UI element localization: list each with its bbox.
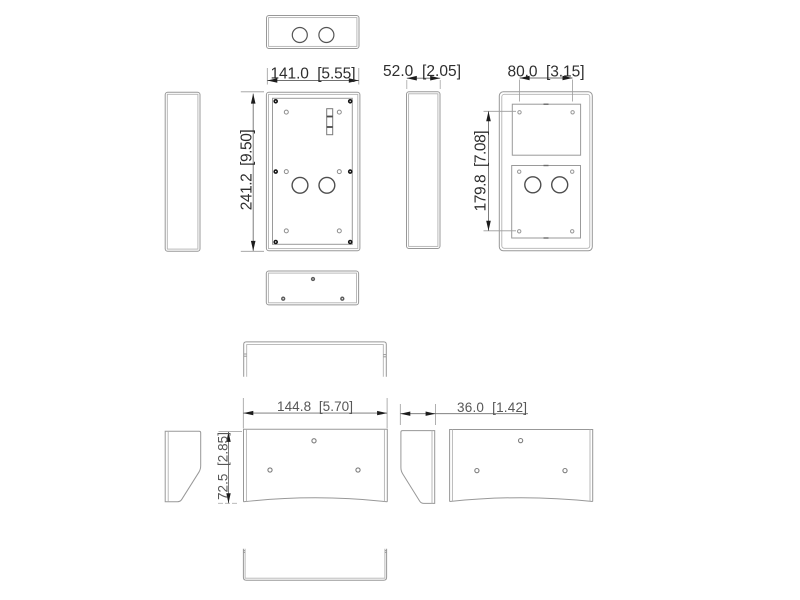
svg-text:52.0 [2.05]: 52.0 [2.05] bbox=[383, 63, 461, 80]
svg-text:179.8 [7.08]: 179.8 [7.08] bbox=[473, 130, 490, 211]
svg-text:241.2 [9.50]: 241.2 [9.50] bbox=[239, 129, 256, 210]
svg-text:36.0 [1.42]: 36.0 [1.42] bbox=[457, 400, 527, 415]
svg-text:144.8 [5.70]: 144.8 [5.70] bbox=[277, 399, 353, 414]
svg-text:141.0 [5.55]: 141.0 [5.55] bbox=[271, 65, 356, 82]
svg-text:72.5 [2.85]: 72.5 [2.85] bbox=[216, 432, 231, 500]
svg-text:80.0 [3.15]: 80.0 [3.15] bbox=[508, 63, 585, 80]
